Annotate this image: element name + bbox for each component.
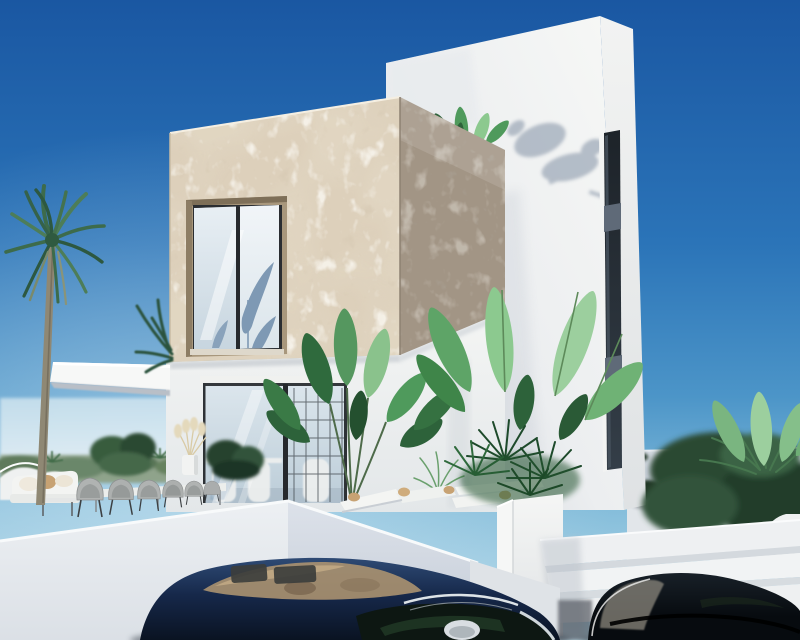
car1-mirror xyxy=(444,620,480,640)
villa-render-image xyxy=(0,0,800,640)
window-spandrel-1 xyxy=(604,203,621,232)
upper-window xyxy=(186,196,287,357)
scene-svg xyxy=(0,0,800,640)
tower-window-strip xyxy=(599,130,622,472)
